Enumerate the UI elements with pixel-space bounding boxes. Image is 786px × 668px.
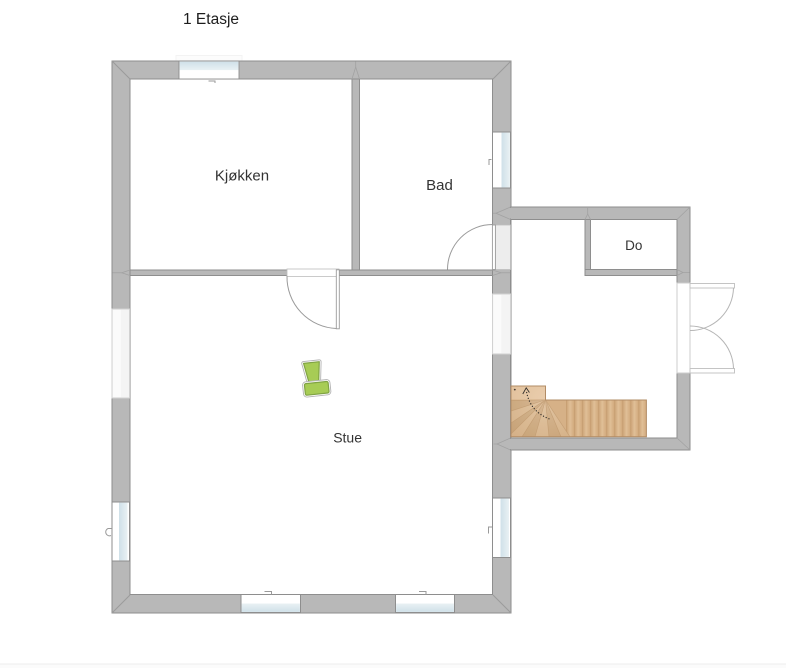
svg-text:1 Etasje: 1 Etasje <box>183 11 239 28</box>
svg-text:Do: Do <box>625 238 642 253</box>
svg-text:Stue: Stue <box>333 429 362 445</box>
svg-text:Kjøkken: Kjøkken <box>215 168 269 185</box>
svg-text:Bad: Bad <box>426 177 453 194</box>
